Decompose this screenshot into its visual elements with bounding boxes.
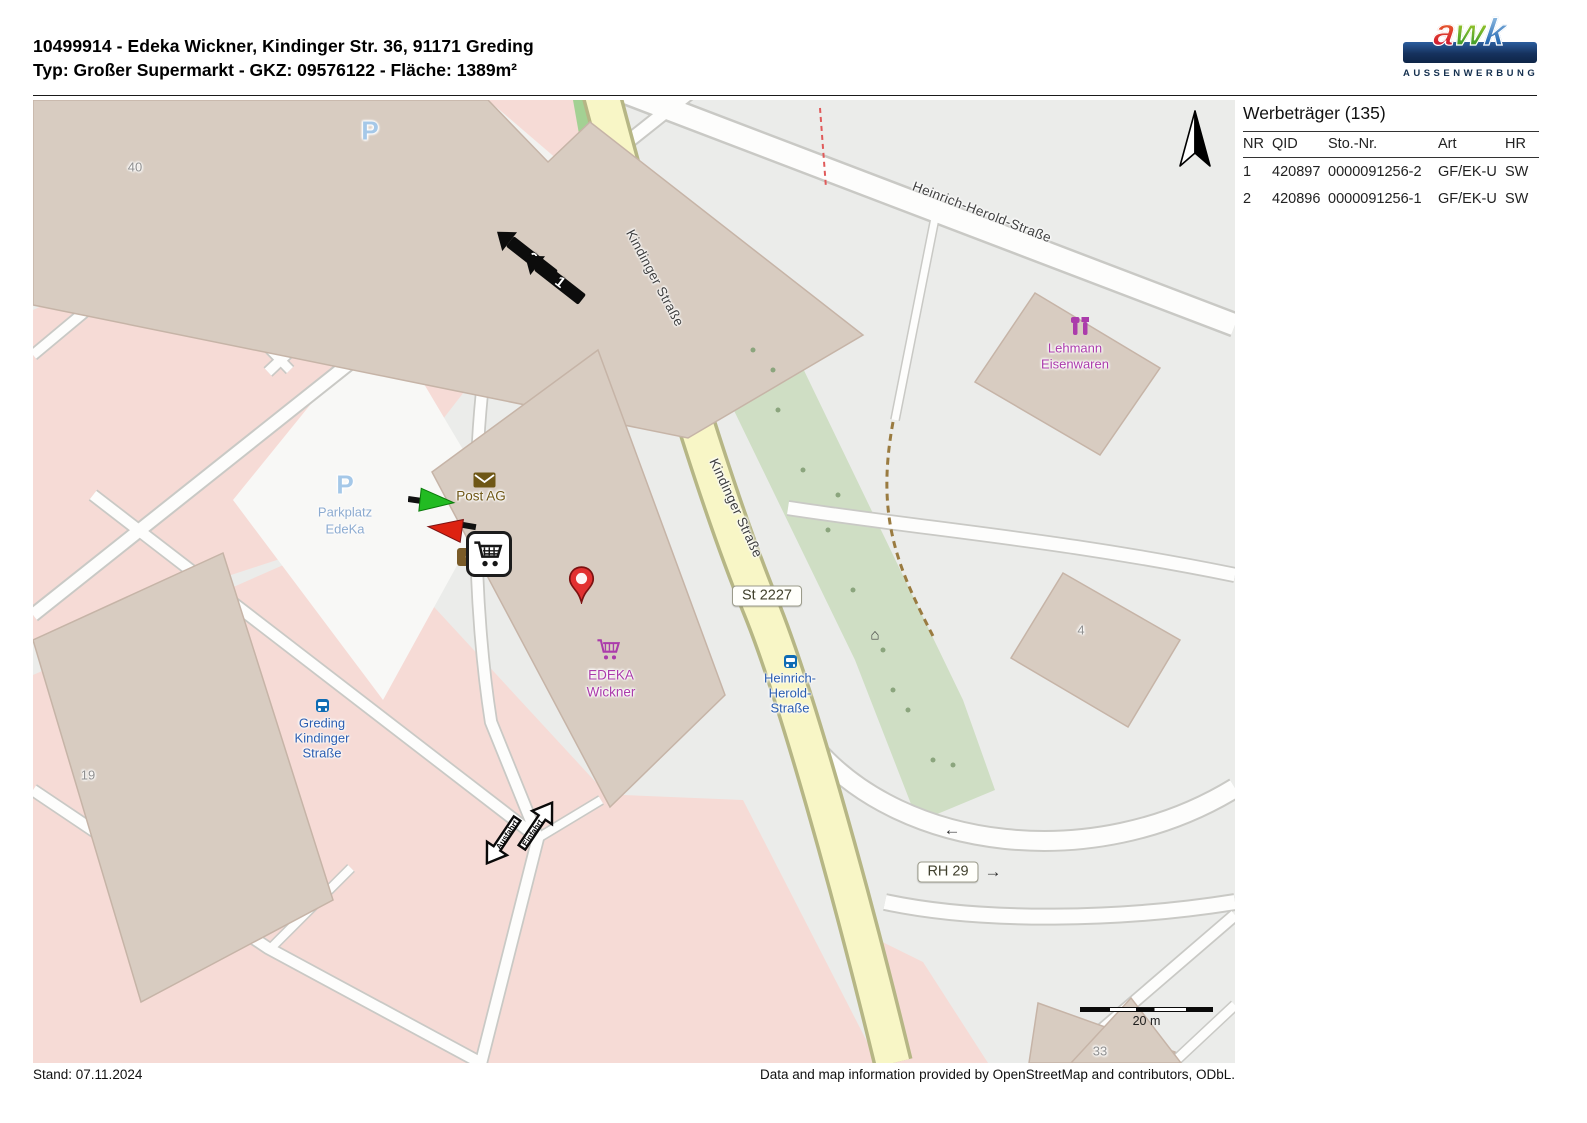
- house-number-33: 33: [1093, 1044, 1107, 1059]
- werbetraeger-table: NR QID Sto.-Nr. Art HR 1 420897 00000912…: [1243, 131, 1539, 212]
- werbetraeger-panel: Werbeträger (135) NR QID Sto.-Nr. Art HR…: [1243, 103, 1539, 212]
- scale-bar-rule: [1080, 1007, 1213, 1012]
- road-ref-badge-rh29: RH 29: [917, 862, 978, 883]
- header-divider: [33, 95, 1537, 96]
- table-row: 2 420896 0000091256-1 GF/EK-U SW: [1243, 185, 1539, 212]
- report-subtitle: Typ: Großer Supermarkt - GKZ: 09576122 -…: [33, 60, 534, 81]
- report-header: 10499914 - Edeka Wickner, Kindinger Str.…: [33, 36, 534, 81]
- cell-sto-nr: 0000091256-1: [1328, 191, 1438, 207]
- cell-hr: SW: [1505, 164, 1539, 180]
- poi-label-parkplatz-2: EdeKa: [325, 522, 364, 537]
- cell-nr: 2: [1243, 191, 1272, 207]
- bus-stop-label-heinrich: Heinrich- Herold- Straße: [764, 671, 816, 716]
- cell-nr: 1: [1243, 164, 1272, 180]
- poi-label-edeka-2: Wickner: [587, 685, 636, 700]
- road-ref-badge-st2227: St 2227: [732, 586, 802, 607]
- cell-art: GF/EK-U: [1438, 164, 1505, 180]
- green-arrow-icon: [419, 488, 455, 514]
- report-title: 10499914 - Edeka Wickner, Kindinger Str.…: [33, 36, 534, 57]
- oneway-arrow-left: ←: [944, 820, 961, 840]
- cell-art: GF/EK-U: [1438, 191, 1505, 207]
- shopping-cart-icon: [473, 539, 505, 569]
- poi-label-parkplatz-1: Parkplatz: [318, 505, 372, 520]
- north-arrow-icon: [1171, 108, 1219, 172]
- map-attribution: Data and map information provided by Ope…: [33, 1067, 1235, 1082]
- col-nr: NR: [1243, 136, 1272, 152]
- bus-stop-line: Heinrich-: [764, 671, 816, 686]
- logo-subtitle: AUSSENWERBUNG: [1403, 68, 1537, 79]
- cell-hr: SW: [1505, 191, 1539, 207]
- cell-qid: 420896: [1272, 191, 1328, 207]
- scale-bar: 20 m: [1080, 1007, 1213, 1028]
- page: { "header": { "line1": "10499914 - Edeka…: [0, 0, 1587, 1123]
- table-header-row: NR QID Sto.-Nr. Art HR: [1243, 131, 1539, 158]
- bus-stop-icon: [784, 655, 797, 668]
- col-sto-nr: Sto.-Nr.: [1328, 136, 1438, 152]
- hardware-tools-icon: [1069, 316, 1093, 336]
- bus-stop-label-greding: Greding Kindinger Straße: [295, 716, 350, 761]
- bus-stop-line: Herold-: [769, 686, 812, 701]
- parking-p-icon-top: P: [361, 116, 378, 147]
- parking-p-icon: P: [336, 470, 353, 501]
- poi-label-lehmann-2: Eisenwaren: [1041, 357, 1109, 372]
- bus-stop-line: Straße: [302, 746, 341, 761]
- hut-icon: ⌂: [870, 627, 879, 644]
- awk-logo: awk AUSSENWERBUNG: [1403, 22, 1537, 84]
- red-arrow-icon: [426, 515, 463, 543]
- bus-stop-icon: [316, 699, 329, 712]
- bus-stop-line: Greding: [299, 716, 345, 731]
- cell-qid: 420897: [1272, 164, 1328, 180]
- col-hr: HR: [1505, 136, 1539, 152]
- shopping-cart-button: [466, 531, 512, 577]
- red-arrow-tail: [462, 522, 477, 530]
- bus-stop-line: Kindinger: [295, 731, 350, 746]
- panel-title: Werbeträger (135): [1243, 103, 1539, 124]
- logo-wordmark: awk: [1431, 14, 1508, 52]
- oneway-arrow-right: →: [985, 862, 1002, 882]
- table-row: 1 420897 0000091256-2 GF/EK-U SW: [1243, 158, 1539, 185]
- location-pin-icon: [568, 566, 595, 604]
- poi-label-lehmann-1: Lehmann: [1048, 341, 1102, 356]
- poi-label-edeka-1: EDEKA: [588, 668, 634, 683]
- scale-bar-label: 20 m: [1080, 1014, 1213, 1028]
- house-number-19: 19: [81, 768, 95, 783]
- billboard-number: 1: [552, 273, 569, 292]
- edeka-cart-icon: [596, 638, 624, 662]
- col-art: Art: [1438, 136, 1505, 152]
- bus-stop-line: Straße: [770, 701, 809, 716]
- map-canvas[interactable]: Kindinger Straße Kindinger Straße Heinri…: [33, 100, 1235, 1063]
- house-number-40: 40: [128, 160, 142, 175]
- house-number-4: 4: [1077, 623, 1084, 638]
- cell-sto-nr: 0000091256-2: [1328, 164, 1438, 180]
- col-qid: QID: [1272, 136, 1328, 152]
